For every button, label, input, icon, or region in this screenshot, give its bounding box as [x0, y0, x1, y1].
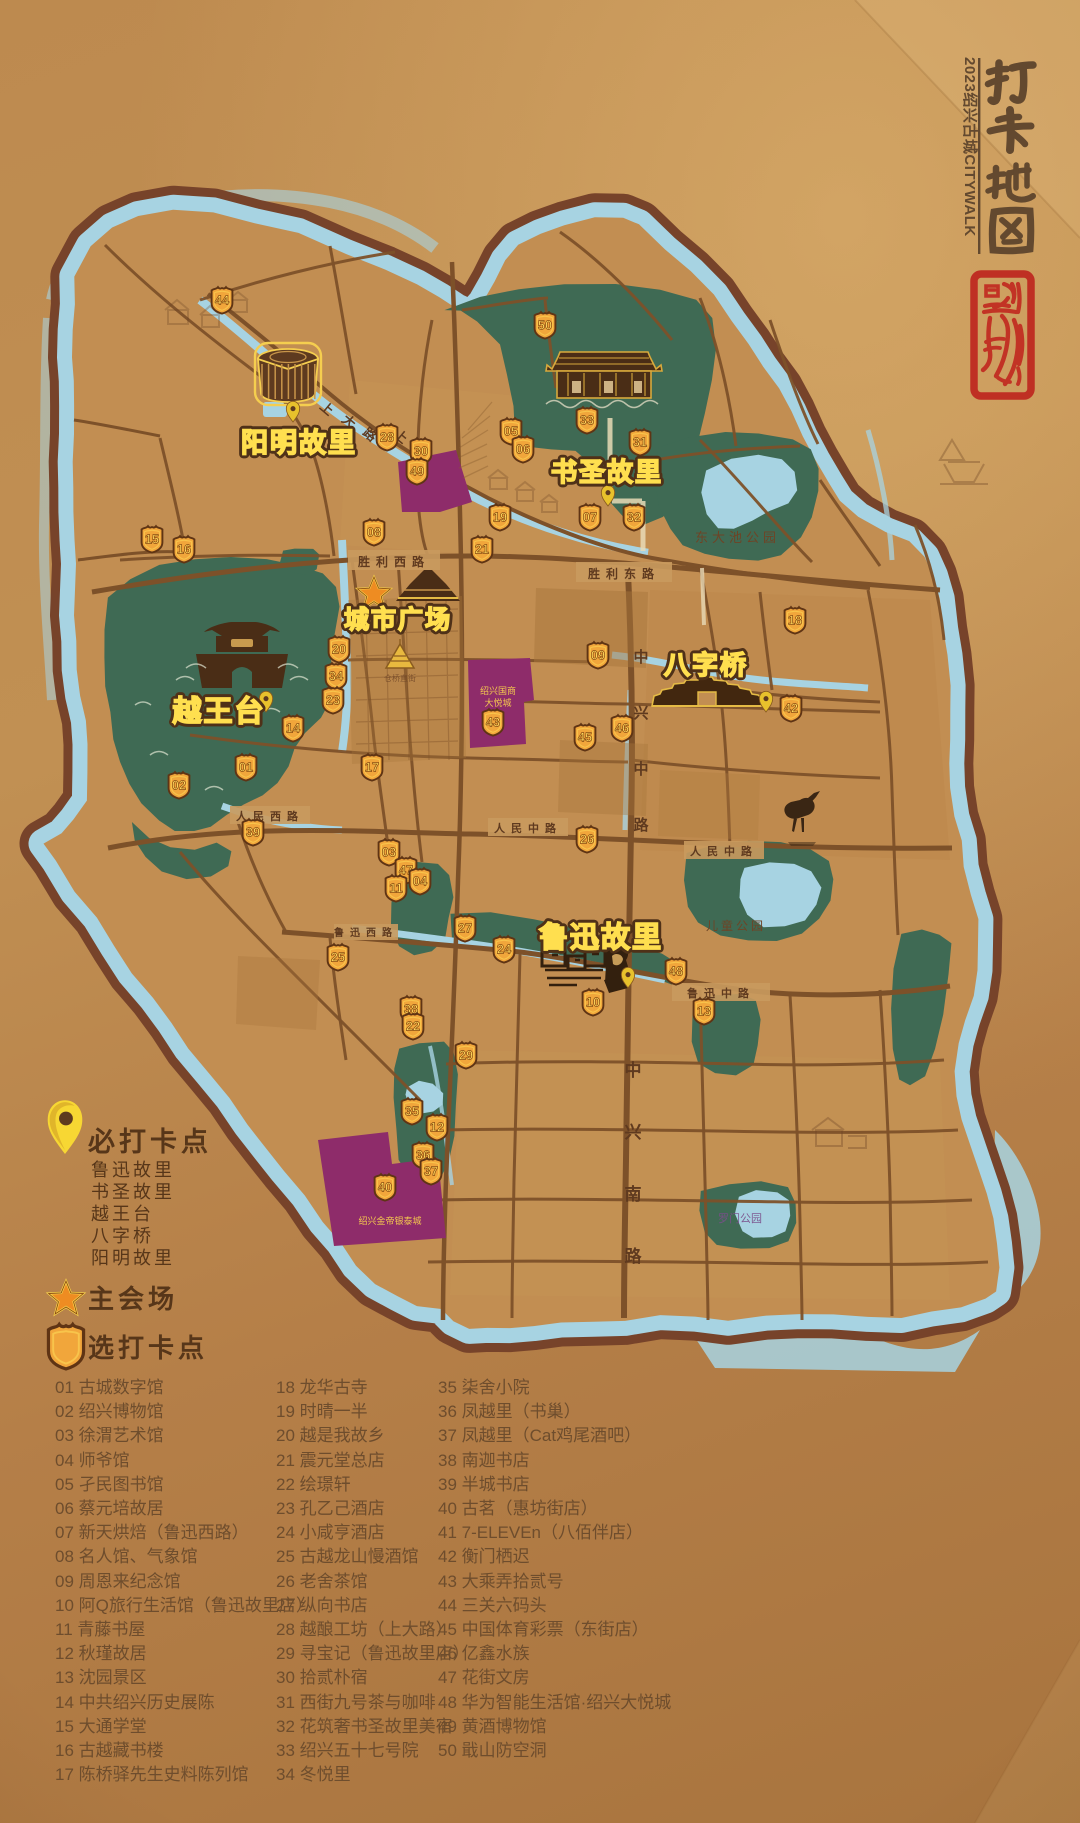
svg-text:05: 05 [504, 423, 518, 438]
svg-text:08: 08 [367, 524, 381, 539]
svg-text:21: 21 [475, 541, 489, 556]
svg-text:路: 路 [633, 816, 649, 834]
svg-text:兴: 兴 [633, 705, 648, 722]
svg-text:八字桥: 八字桥 [664, 650, 748, 680]
svg-text:35: 35 [405, 1103, 419, 1118]
svg-text:2023绍兴古城CITYWALK: 2023绍兴古城CITYWALK [961, 57, 979, 237]
svg-text:45: 45 [578, 729, 592, 744]
svg-text:37: 37 [424, 1163, 438, 1178]
svg-text:34: 34 [329, 668, 344, 683]
svg-text:44: 44 [215, 292, 230, 307]
svg-text:11: 11 [389, 880, 403, 895]
svg-text:32: 32 [627, 509, 641, 524]
svg-text:中: 中 [633, 648, 648, 666]
svg-text:09: 09 [591, 647, 605, 662]
svg-text:城市广场: 城市广场 [344, 605, 452, 634]
svg-text:书圣故里: 书圣故里 [551, 457, 663, 487]
svg-text:40: 40 [378, 1179, 392, 1194]
svg-text:06: 06 [516, 441, 530, 456]
svg-text:03: 03 [382, 844, 396, 859]
svg-text:17: 17 [365, 759, 379, 774]
svg-text:鲁迅中路: 鲁迅中路 [687, 986, 755, 1000]
svg-text:16: 16 [177, 541, 191, 556]
svg-text:24: 24 [497, 941, 512, 956]
svg-text:04: 04 [413, 873, 428, 888]
svg-text:10: 10 [586, 994, 600, 1009]
svg-text:39: 39 [246, 824, 260, 839]
svg-text:28: 28 [380, 429, 394, 444]
svg-text:20: 20 [332, 641, 346, 656]
svg-text:46: 46 [615, 720, 629, 735]
svg-text:13: 13 [697, 1003, 711, 1018]
svg-text:阳明故里: 阳明故里 [91, 1248, 175, 1268]
svg-text:25: 25 [331, 949, 345, 964]
svg-text:人民中路: 人民中路 [494, 821, 562, 835]
svg-text:27: 27 [458, 920, 472, 935]
svg-text:阳明故里: 阳明故里 [241, 428, 357, 458]
svg-text:30: 30 [414, 443, 428, 458]
svg-text:绍兴金帝银泰城: 绍兴金帝银泰城 [358, 1215, 421, 1226]
svg-text:南: 南 [625, 1184, 642, 1204]
svg-text:43: 43 [486, 714, 500, 729]
svg-text:01: 01 [239, 759, 253, 774]
svg-text:胜利西路: 胜利西路 [358, 554, 430, 569]
svg-text:胜利东路: 胜利东路 [588, 566, 660, 581]
svg-text:人民中路: 人民中路 [690, 844, 758, 858]
svg-text:42: 42 [784, 700, 798, 715]
svg-text:中: 中 [625, 1060, 642, 1080]
svg-text:33: 33 [580, 412, 594, 427]
svg-text:12: 12 [430, 1119, 444, 1134]
svg-text:书圣故里: 书圣故里 [91, 1182, 175, 1202]
svg-text:大悦城: 大悦城 [484, 697, 511, 708]
svg-text:29: 29 [459, 1047, 473, 1062]
svg-text:儿童公园: 儿童公园 [706, 918, 766, 933]
svg-text:22: 22 [406, 1018, 420, 1033]
svg-text:02: 02 [172, 777, 186, 792]
svg-text:罗门公园: 罗门公园 [718, 1211, 762, 1225]
svg-text:15: 15 [145, 531, 159, 546]
svg-text:八字桥: 八字桥 [91, 1226, 154, 1246]
svg-text:18: 18 [788, 612, 802, 627]
svg-text:07: 07 [583, 509, 597, 524]
svg-text:仓桥直街: 仓桥直街 [384, 673, 416, 683]
svg-text:鲁迅故里: 鲁迅故里 [91, 1160, 175, 1180]
svg-text:必打卡点: 必打卡点 [88, 1127, 212, 1157]
svg-text:路: 路 [625, 1246, 643, 1266]
svg-text:49: 49 [410, 463, 424, 478]
svg-text:鲁迅西路: 鲁迅西路 [333, 926, 398, 939]
svg-text:31: 31 [633, 434, 647, 449]
svg-text:23: 23 [326, 692, 340, 707]
svg-text:19: 19 [493, 509, 507, 524]
svg-text:绍兴国商: 绍兴国商 [480, 685, 516, 696]
svg-text:主会场: 主会场 [88, 1284, 178, 1314]
svg-text:鲁迅故里: 鲁迅故里 [539, 921, 663, 954]
svg-text:选打卡点: 选打卡点 [88, 1333, 208, 1363]
svg-text:越王台: 越王台 [172, 694, 265, 728]
svg-text:兴: 兴 [625, 1123, 642, 1142]
svg-text:东大池公园: 东大池公园 [695, 530, 780, 545]
svg-text:中: 中 [633, 760, 648, 778]
svg-text:26: 26 [580, 831, 594, 846]
svg-text:48: 48 [669, 963, 683, 978]
svg-text:50: 50 [538, 317, 552, 332]
svg-text:越王台: 越王台 [91, 1204, 154, 1224]
svg-text:14: 14 [286, 720, 301, 735]
